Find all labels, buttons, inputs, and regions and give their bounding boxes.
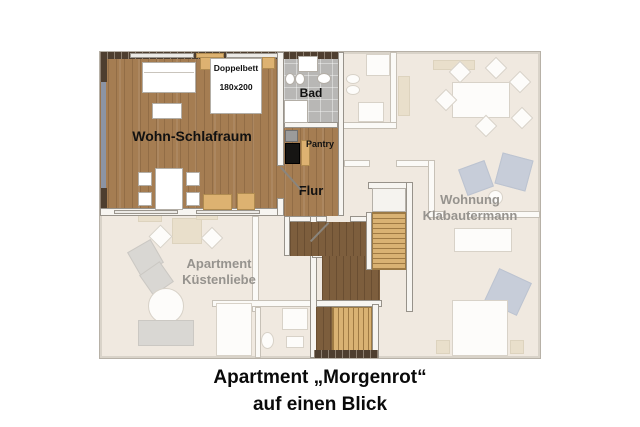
shower <box>298 56 318 72</box>
corridor <box>290 222 368 256</box>
window <box>130 53 194 58</box>
wall <box>406 182 413 312</box>
chair <box>138 172 152 186</box>
caption-line-2: auf einen Blick <box>0 391 640 418</box>
sofa <box>138 320 194 346</box>
chair <box>186 172 200 186</box>
exterior-wall <box>314 350 378 358</box>
room-label-wohn-schlafraum: Wohn-Schlafraum <box>106 128 278 144</box>
sofa <box>142 62 196 93</box>
chair <box>186 192 200 206</box>
neighbor-label-kuestenliebe: Apartment Küstenliebe <box>149 256 289 288</box>
neighbor-label-line: Klabautermann <box>400 208 540 224</box>
coffee-table <box>152 103 182 119</box>
nightstand <box>436 340 450 354</box>
bed-label: Doppelbett 180x200 <box>210 59 262 97</box>
wall <box>390 52 397 128</box>
toilet <box>346 85 360 95</box>
bed-label-line: Doppelbett <box>210 59 262 78</box>
landing <box>372 188 406 212</box>
dining-table <box>452 82 510 118</box>
dining-table <box>155 168 183 210</box>
window <box>196 210 260 214</box>
caption: Apartment „Morgenrot“ auf einen Blick <box>0 364 640 418</box>
floorplan-image: Wohnung Klabautermann Apartment Küstenli… <box>0 0 640 427</box>
sofa-line <box>144 72 194 73</box>
neighbor-label-line: Wohnung <box>400 192 540 208</box>
toilet <box>285 73 295 85</box>
neighbor-label-klabautermann: Wohnung Klabautermann <box>400 192 540 224</box>
neighbor-label-line: Apartment <box>149 256 289 272</box>
sink <box>286 336 304 348</box>
table <box>454 228 512 252</box>
wall <box>255 307 261 358</box>
wall <box>342 122 397 129</box>
toilet <box>295 73 305 85</box>
table <box>172 218 202 244</box>
shower-tray <box>358 102 384 122</box>
sink <box>317 73 331 84</box>
caption-line-1: Apartment „Morgenrot“ <box>0 364 640 391</box>
neighbor-label-line: Küstenliebe <box>149 272 289 288</box>
room-label-pantry: Pantry <box>298 139 342 149</box>
floor-plan: Wohnung Klabautermann Apartment Küstenli… <box>100 52 540 358</box>
wardrobe <box>398 76 410 116</box>
wall <box>277 52 284 166</box>
exterior-wall <box>100 52 107 82</box>
sideboard <box>203 194 232 210</box>
wall <box>277 198 284 216</box>
staircase-upper <box>372 212 406 270</box>
room-label-bad: Bad <box>284 86 338 100</box>
wall <box>344 160 370 167</box>
shower-tray <box>284 100 308 123</box>
staircase-lower <box>332 307 372 352</box>
shower <box>282 308 308 330</box>
sideboard <box>237 193 255 210</box>
bed <box>216 303 252 356</box>
toilet <box>346 74 360 84</box>
bed <box>452 300 508 356</box>
nightstand <box>510 340 524 354</box>
shower <box>366 54 390 76</box>
bed-label-line: 180x200 <box>210 78 262 97</box>
nightstand <box>262 57 275 69</box>
window <box>114 210 178 214</box>
round-table <box>148 288 184 324</box>
toilet <box>261 332 274 349</box>
wall <box>338 52 344 216</box>
wall <box>366 212 372 270</box>
kitchen-sink <box>285 130 298 142</box>
room-label-flur: Flur <box>284 183 338 198</box>
chair <box>138 192 152 206</box>
